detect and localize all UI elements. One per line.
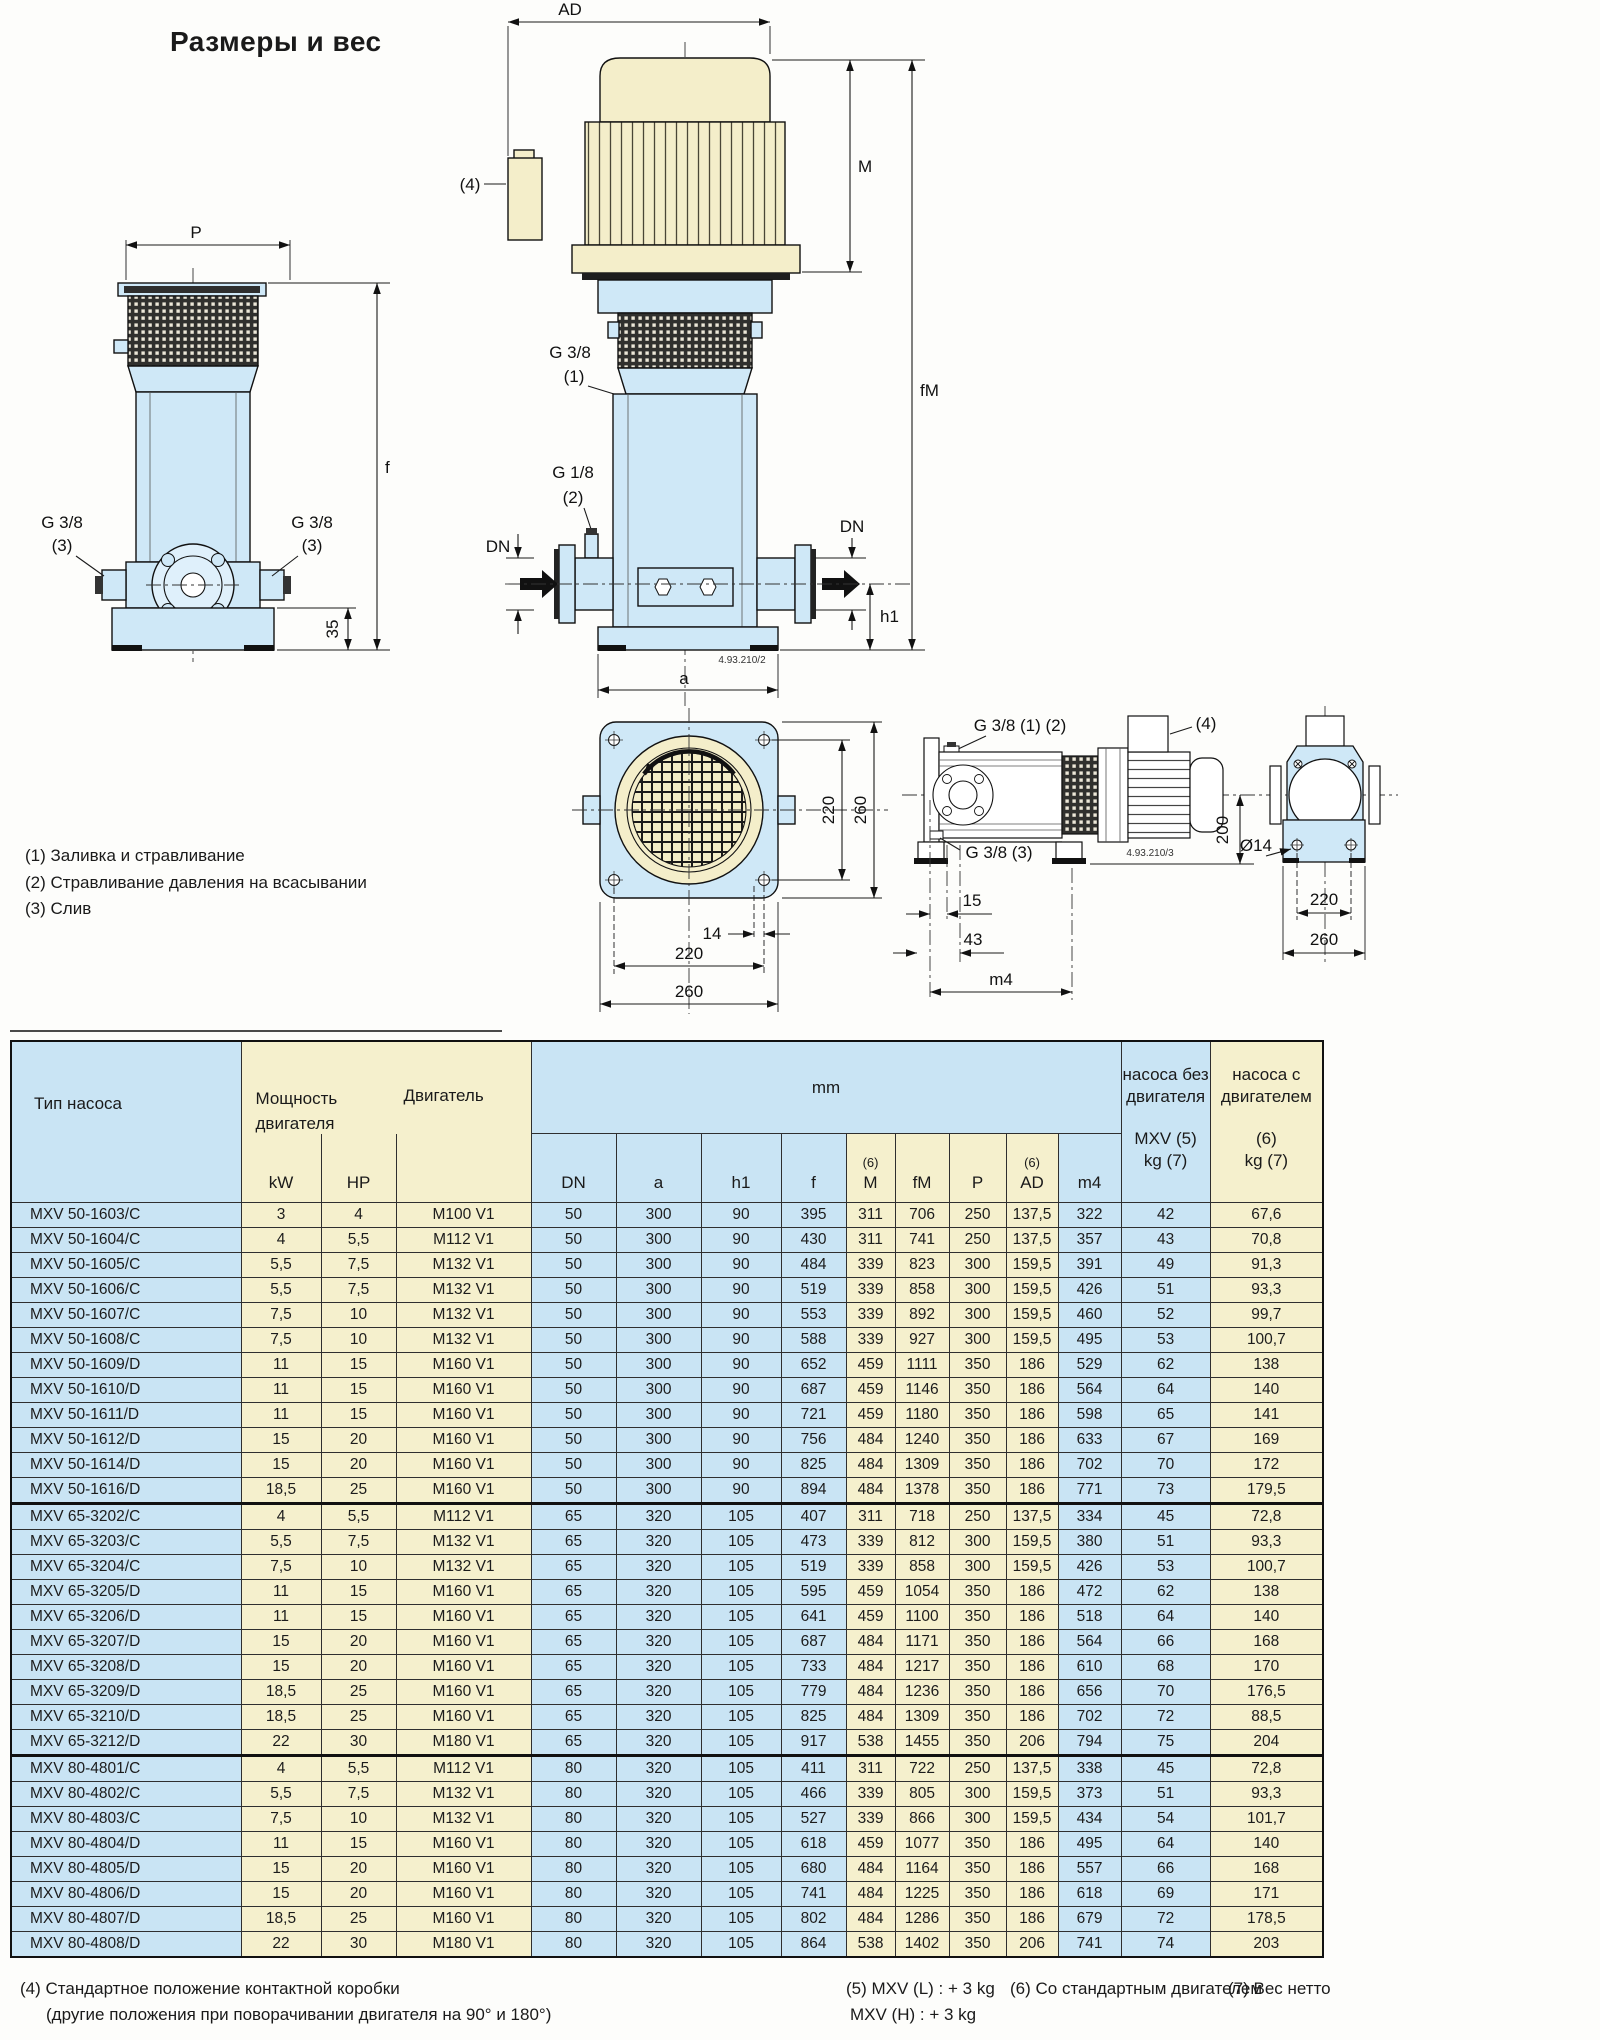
value-cell: 169 bbox=[1210, 1428, 1323, 1453]
port-label-g18: G 1/8 bbox=[552, 463, 594, 482]
terminal-box-label-4-side: (4) bbox=[1196, 714, 1217, 733]
value-cell: 5,5 bbox=[321, 1504, 396, 1530]
value-cell: 825 bbox=[781, 1453, 846, 1478]
value-cell: M132 V1 bbox=[396, 1303, 531, 1328]
value-cell: 300 bbox=[616, 1328, 701, 1353]
value-cell: 186 bbox=[1006, 1428, 1058, 1453]
value-cell: 320 bbox=[616, 1782, 701, 1807]
value-cell: 484 bbox=[846, 1882, 895, 1907]
value-cell: 140 bbox=[1210, 1832, 1323, 1857]
dim-label-43: 43 bbox=[964, 930, 983, 949]
value-cell: 357 bbox=[1058, 1228, 1121, 1253]
value-cell: 25 bbox=[321, 1478, 396, 1504]
pump-row: MXV 80-4806/D1520M160 V18032010574148412… bbox=[11, 1882, 1323, 1907]
value-cell: 518 bbox=[1058, 1605, 1121, 1630]
value-cell: 564 bbox=[1058, 1378, 1121, 1403]
value-cell: 484 bbox=[846, 1630, 895, 1655]
value-cell: 90 bbox=[701, 1228, 781, 1253]
pump-type-cell: MXV 50-1605/C bbox=[11, 1253, 241, 1278]
value-cell: 350 bbox=[949, 1932, 1006, 1958]
pump-type-cell: MXV 50-1606/C bbox=[11, 1278, 241, 1303]
value-cell: 892 bbox=[895, 1303, 949, 1328]
value-cell: 459 bbox=[846, 1353, 895, 1378]
value-cell: M160 V1 bbox=[396, 1605, 531, 1630]
value-cell: 69 bbox=[1121, 1882, 1210, 1907]
value-cell: 4 bbox=[241, 1756, 321, 1782]
value-cell: 50 bbox=[531, 1253, 616, 1278]
pump-type-cell: MXV 65-3208/D bbox=[11, 1655, 241, 1680]
pump-type-cell: MXV 50-1603/C bbox=[11, 1203, 241, 1228]
value-cell: M180 V1 bbox=[396, 1730, 531, 1756]
front-view-pump-with-motor: AD (4) G 3/8 (1) G 1/8 (2) bbox=[460, 0, 939, 706]
value-cell: 618 bbox=[781, 1832, 846, 1857]
pump-row: MXV 65-3208/D1520M160 V16532010573348412… bbox=[11, 1655, 1323, 1680]
value-cell: M160 V1 bbox=[396, 1478, 531, 1504]
port-label-g38-right: G 3/8 bbox=[291, 513, 333, 532]
value-cell: 3 bbox=[241, 1203, 321, 1228]
pump-type-cell: MXV 80-4805/D bbox=[11, 1857, 241, 1882]
value-cell: 812 bbox=[895, 1530, 949, 1555]
value-cell: 65 bbox=[531, 1680, 616, 1705]
value-cell: 159,5 bbox=[1006, 1253, 1058, 1278]
value-cell: 250 bbox=[949, 1504, 1006, 1530]
value-cell: 80 bbox=[531, 1756, 616, 1782]
value-cell: 64 bbox=[1121, 1605, 1210, 1630]
dim-label-260-vertical: 260 bbox=[851, 796, 870, 824]
value-cell: 105 bbox=[701, 1705, 781, 1730]
value-cell: 756 bbox=[781, 1428, 846, 1453]
value-cell: 334 bbox=[1058, 1504, 1121, 1530]
value-cell: 320 bbox=[616, 1705, 701, 1730]
value-cell: 679 bbox=[1058, 1907, 1121, 1932]
value-cell: 320 bbox=[616, 1832, 701, 1857]
pump-type-cell: MXV 80-4801/C bbox=[11, 1756, 241, 1782]
value-cell: 1111 bbox=[895, 1353, 949, 1378]
value-cell: 10 bbox=[321, 1303, 396, 1328]
value-cell: 18,5 bbox=[241, 1478, 321, 1504]
value-cell: 105 bbox=[701, 1932, 781, 1958]
pump-row: MXV 80-4805/D1520M160 V18032010568048411… bbox=[11, 1857, 1323, 1882]
value-cell: 137,5 bbox=[1006, 1203, 1058, 1228]
value-cell: 1171 bbox=[895, 1630, 949, 1655]
value-cell: 90 bbox=[701, 1278, 781, 1303]
value-cell: M112 V1 bbox=[396, 1228, 531, 1253]
value-cell: 350 bbox=[949, 1857, 1006, 1882]
footnote-6: (6) Со стандартным двигателем bbox=[1010, 1976, 1262, 2002]
value-cell: 65 bbox=[531, 1555, 616, 1580]
dim-label-220-vertical: 220 bbox=[819, 796, 838, 824]
value-cell: 320 bbox=[616, 1907, 701, 1932]
value-cell: 802 bbox=[781, 1907, 846, 1932]
footnote-7: (7) Вес нетто bbox=[1228, 1976, 1331, 2002]
value-cell: 62 bbox=[1121, 1353, 1210, 1378]
pump-type-cell: MXV 65-3205/D bbox=[11, 1580, 241, 1605]
value-cell: 484 bbox=[846, 1907, 895, 1932]
pump-type-cell: MXV 65-3207/D bbox=[11, 1630, 241, 1655]
value-cell: 186 bbox=[1006, 1705, 1058, 1730]
value-cell: 20 bbox=[321, 1882, 396, 1907]
value-cell: 300 bbox=[616, 1203, 701, 1228]
value-cell: 105 bbox=[701, 1857, 781, 1882]
value-cell: 65 bbox=[531, 1580, 616, 1605]
col-header-hp: HP bbox=[321, 1134, 396, 1203]
value-cell: 339 bbox=[846, 1253, 895, 1278]
value-cell: 20 bbox=[321, 1630, 396, 1655]
pump-row: MXV 65-3203/C5,57,5M132 V165320105473339… bbox=[11, 1530, 1323, 1555]
value-cell: 100,7 bbox=[1210, 1328, 1323, 1353]
value-cell: 322 bbox=[1058, 1203, 1121, 1228]
value-cell: 7,5 bbox=[321, 1782, 396, 1807]
value-cell: 350 bbox=[949, 1378, 1006, 1403]
value-cell: 65 bbox=[531, 1504, 616, 1530]
value-cell: M132 V1 bbox=[396, 1807, 531, 1832]
value-cell: 320 bbox=[616, 1730, 701, 1756]
value-cell: 80 bbox=[531, 1782, 616, 1807]
value-cell: 10 bbox=[321, 1555, 396, 1580]
pump-type-cell: MXV 50-1616/D bbox=[11, 1478, 241, 1504]
value-cell: 527 bbox=[781, 1807, 846, 1832]
value-cell: 54 bbox=[1121, 1807, 1210, 1832]
pump-type-cell: MXV 50-1609/D bbox=[11, 1353, 241, 1378]
value-cell: 300 bbox=[949, 1278, 1006, 1303]
value-cell: 93,3 bbox=[1210, 1278, 1323, 1303]
value-cell: 411 bbox=[781, 1756, 846, 1782]
value-cell: 466 bbox=[781, 1782, 846, 1807]
value-cell: 350 bbox=[949, 1832, 1006, 1857]
pump-type-cell: MXV 50-1610/D bbox=[11, 1378, 241, 1403]
value-cell: 50 bbox=[531, 1428, 616, 1453]
value-cell: 90 bbox=[701, 1378, 781, 1403]
value-cell: 141 bbox=[1210, 1403, 1323, 1428]
value-cell: 70 bbox=[1121, 1680, 1210, 1705]
value-cell: 15 bbox=[321, 1353, 396, 1378]
value-cell: 598 bbox=[1058, 1403, 1121, 1428]
value-cell: 1455 bbox=[895, 1730, 949, 1756]
pump-group-1: MXV 50-1603/C34M100 V1503009039531170625… bbox=[11, 1203, 1323, 1504]
value-cell: 519 bbox=[781, 1555, 846, 1580]
value-cell: 15 bbox=[241, 1857, 321, 1882]
value-cell: 15 bbox=[321, 1832, 396, 1857]
pump-type-cell: MXV 65-3210/D bbox=[11, 1705, 241, 1730]
value-cell: 350 bbox=[949, 1403, 1006, 1428]
value-cell: 20 bbox=[321, 1857, 396, 1882]
value-cell: 5,5 bbox=[241, 1253, 321, 1278]
pump-type-cell: MXV 50-1608/C bbox=[11, 1328, 241, 1353]
pump-row: MXV 80-4802/C5,57,5M132 V180320105466339… bbox=[11, 1782, 1323, 1807]
value-cell: M132 V1 bbox=[396, 1782, 531, 1807]
value-cell: 105 bbox=[701, 1655, 781, 1680]
value-cell: 350 bbox=[949, 1605, 1006, 1630]
value-cell: 311 bbox=[846, 1504, 895, 1530]
port-label-1: (1) bbox=[564, 367, 585, 386]
value-cell: 105 bbox=[701, 1756, 781, 1782]
value-cell: 168 bbox=[1210, 1857, 1323, 1882]
value-cell: 1240 bbox=[895, 1428, 949, 1453]
value-cell: 350 bbox=[949, 1453, 1006, 1478]
dim-label-p: P bbox=[190, 223, 201, 242]
value-cell: 380 bbox=[1058, 1530, 1121, 1555]
pump-row: MXV 65-3204/C7,510M132 V1653201055193398… bbox=[11, 1555, 1323, 1580]
value-cell: 50 bbox=[531, 1303, 616, 1328]
value-cell: 206 bbox=[1006, 1730, 1058, 1756]
value-cell: 15 bbox=[321, 1403, 396, 1428]
value-cell: 186 bbox=[1006, 1907, 1058, 1932]
value-cell: 80 bbox=[531, 1807, 616, 1832]
value-cell: 633 bbox=[1058, 1428, 1121, 1453]
value-cell: 538 bbox=[846, 1730, 895, 1756]
value-cell: 350 bbox=[949, 1907, 1006, 1932]
value-cell: 171 bbox=[1210, 1882, 1323, 1907]
value-cell: 484 bbox=[846, 1680, 895, 1705]
value-cell: 311 bbox=[846, 1203, 895, 1228]
value-cell: 7,5 bbox=[241, 1555, 321, 1580]
pump-type-cell: MXV 80-4804/D bbox=[11, 1832, 241, 1857]
dim-label-15: 15 bbox=[963, 891, 982, 910]
value-cell: 687 bbox=[781, 1630, 846, 1655]
value-cell: 300 bbox=[616, 1303, 701, 1328]
value-cell: 68 bbox=[1121, 1655, 1210, 1680]
value-cell: 459 bbox=[846, 1403, 895, 1428]
pump-row: MXV 65-3207/D1520M160 V16532010568748411… bbox=[11, 1630, 1323, 1655]
value-cell: 300 bbox=[949, 1328, 1006, 1353]
col-header-weight-without-motor: насоса бездвигателя MXV (5)kg (7) bbox=[1121, 1041, 1210, 1203]
value-cell: 50 bbox=[531, 1353, 616, 1378]
value-cell: M112 V1 bbox=[396, 1504, 531, 1530]
value-cell: 105 bbox=[701, 1504, 781, 1530]
value-cell: 90 bbox=[701, 1303, 781, 1328]
port-label-g38-3-side: G 3/8 (3) bbox=[965, 843, 1032, 862]
value-cell: 917 bbox=[781, 1730, 846, 1756]
col-header-weight-with-motor: насоса сдвигателем (6)kg (7) bbox=[1210, 1041, 1323, 1203]
value-cell: 65 bbox=[1121, 1403, 1210, 1428]
value-cell: 186 bbox=[1006, 1378, 1058, 1403]
value-cell: 62 bbox=[1121, 1580, 1210, 1605]
value-cell: 140 bbox=[1210, 1605, 1323, 1630]
value-cell: 350 bbox=[949, 1655, 1006, 1680]
value-cell: 204 bbox=[1210, 1730, 1323, 1756]
value-cell: 186 bbox=[1006, 1857, 1058, 1882]
pump-type-cell: MXV 65-3209/D bbox=[11, 1680, 241, 1705]
pump-type-cell: MXV 50-1614/D bbox=[11, 1453, 241, 1478]
value-cell: 186 bbox=[1006, 1478, 1058, 1504]
value-cell: 823 bbox=[895, 1253, 949, 1278]
value-cell: 159,5 bbox=[1006, 1278, 1058, 1303]
value-cell: 90 bbox=[701, 1428, 781, 1453]
value-cell: 45 bbox=[1121, 1504, 1210, 1530]
value-cell: 564 bbox=[1058, 1630, 1121, 1655]
value-cell: M160 V1 bbox=[396, 1630, 531, 1655]
value-cell: 7,5 bbox=[321, 1253, 396, 1278]
pump-row: MXV 65-3212/D2230M180 V16532010591753814… bbox=[11, 1730, 1323, 1756]
value-cell: 206 bbox=[1006, 1932, 1058, 1958]
drawing-note-3: (3) Слив bbox=[25, 896, 367, 923]
value-cell: 138 bbox=[1210, 1353, 1323, 1378]
dim-label-dn-right: DN bbox=[840, 517, 865, 536]
col-header-f: f bbox=[781, 1134, 846, 1203]
value-cell: 186 bbox=[1006, 1630, 1058, 1655]
port-label-3-right: (3) bbox=[302, 536, 323, 555]
value-cell: 170 bbox=[1210, 1655, 1323, 1680]
value-cell: 18,5 bbox=[241, 1907, 321, 1932]
value-cell: 70,8 bbox=[1210, 1228, 1323, 1253]
value-cell: 300 bbox=[616, 1478, 701, 1504]
col-header-motor-blank bbox=[396, 1134, 531, 1203]
drawing-code-side: 4.93.210/3 bbox=[1126, 848, 1174, 859]
pump-type-cell: MXV 80-4807/D bbox=[11, 1907, 241, 1932]
value-cell: 51 bbox=[1121, 1782, 1210, 1807]
dim-label-260-end: 260 bbox=[1310, 930, 1338, 949]
pump-row: MXV 50-1608/C7,510M132 V1503009058833992… bbox=[11, 1328, 1323, 1353]
value-cell: 430 bbox=[781, 1228, 846, 1253]
value-cell: M160 V1 bbox=[396, 1655, 531, 1680]
value-cell: 50 bbox=[531, 1328, 616, 1353]
value-cell: M160 V1 bbox=[396, 1428, 531, 1453]
pump-type-cell: MXV 80-4806/D bbox=[11, 1882, 241, 1907]
value-cell: M160 V1 bbox=[396, 1907, 531, 1932]
port-label-g38-1-2: G 3/8 (1) (2) bbox=[974, 716, 1067, 735]
value-cell: 1225 bbox=[895, 1882, 949, 1907]
value-cell: 320 bbox=[616, 1504, 701, 1530]
pump-type-cell: MXV 65-3206/D bbox=[11, 1605, 241, 1630]
value-cell: 186 bbox=[1006, 1655, 1058, 1680]
value-cell: 794 bbox=[1058, 1730, 1121, 1756]
value-cell: 20 bbox=[321, 1428, 396, 1453]
value-cell: 105 bbox=[701, 1730, 781, 1756]
value-cell: 434 bbox=[1058, 1807, 1121, 1832]
col-header-motor: Двигатель bbox=[404, 1086, 484, 1106]
value-cell: 300 bbox=[949, 1253, 1006, 1278]
value-cell: 300 bbox=[616, 1453, 701, 1478]
value-cell: M160 V1 bbox=[396, 1857, 531, 1882]
drawing-code-front: 4.93.210/2 bbox=[718, 655, 766, 666]
value-cell: 741 bbox=[895, 1228, 949, 1253]
value-cell: 652 bbox=[781, 1353, 846, 1378]
value-cell: M160 V1 bbox=[396, 1403, 531, 1428]
value-cell: 7,5 bbox=[321, 1278, 396, 1303]
value-cell: 80 bbox=[531, 1832, 616, 1857]
value-cell: 45 bbox=[1121, 1756, 1210, 1782]
value-cell: 93,3 bbox=[1210, 1530, 1323, 1555]
dim-label-h1: h1 bbox=[880, 607, 899, 626]
value-cell: 459 bbox=[846, 1378, 895, 1403]
value-cell: 49 bbox=[1121, 1253, 1210, 1278]
value-cell: 1309 bbox=[895, 1453, 949, 1478]
value-cell: 4 bbox=[241, 1504, 321, 1530]
col-header-mm: mm bbox=[531, 1041, 1121, 1134]
value-cell: 460 bbox=[1058, 1303, 1121, 1328]
value-cell: 80 bbox=[531, 1907, 616, 1932]
value-cell: 311 bbox=[846, 1228, 895, 1253]
pump-type-cell: MXV 65-3212/D bbox=[11, 1730, 241, 1756]
value-cell: 15 bbox=[321, 1580, 396, 1605]
value-cell: 25 bbox=[321, 1907, 396, 1932]
value-cell: 65 bbox=[531, 1530, 616, 1555]
pump-row: MXV 50-1606/C5,57,5M132 V150300905193398… bbox=[11, 1278, 1323, 1303]
value-cell: 186 bbox=[1006, 1832, 1058, 1857]
value-cell: 101,7 bbox=[1210, 1807, 1323, 1832]
pump-row: MXV 50-1607/C7,510M132 V1503009055333989… bbox=[11, 1303, 1323, 1328]
value-cell: 137,5 bbox=[1006, 1504, 1058, 1530]
value-cell: 67 bbox=[1121, 1428, 1210, 1453]
value-cell: 300 bbox=[616, 1378, 701, 1403]
value-cell: 702 bbox=[1058, 1705, 1121, 1730]
value-cell: 105 bbox=[701, 1832, 781, 1857]
col-header-a: a bbox=[616, 1134, 701, 1203]
value-cell: 320 bbox=[616, 1530, 701, 1555]
value-cell: 11 bbox=[241, 1403, 321, 1428]
drawing-notes: (1) Заливка и стравливание (2) Стравлива… bbox=[25, 843, 367, 923]
value-cell: 459 bbox=[846, 1832, 895, 1857]
port-label-g38-left: G 3/8 bbox=[41, 513, 83, 532]
drawing-note-1: (1) Заливка и стравливание bbox=[25, 843, 367, 870]
value-cell: 350 bbox=[949, 1478, 1006, 1504]
value-cell: 50 bbox=[531, 1453, 616, 1478]
value-cell: M132 V1 bbox=[396, 1328, 531, 1353]
value-cell: 80 bbox=[531, 1857, 616, 1882]
value-cell: 7,5 bbox=[241, 1807, 321, 1832]
value-cell: 858 bbox=[895, 1555, 949, 1580]
value-cell: 15 bbox=[241, 1453, 321, 1478]
value-cell: 779 bbox=[781, 1680, 846, 1705]
value-cell: 105 bbox=[701, 1807, 781, 1832]
dim-label-220-bottom: 220 bbox=[675, 944, 703, 963]
value-cell: 495 bbox=[1058, 1832, 1121, 1857]
value-cell: 65 bbox=[531, 1605, 616, 1630]
col-header-p: P bbox=[949, 1134, 1006, 1203]
value-cell: 595 bbox=[781, 1580, 846, 1605]
value-cell: 4 bbox=[321, 1203, 396, 1228]
value-cell: 72,8 bbox=[1210, 1756, 1323, 1782]
value-cell: 168 bbox=[1210, 1630, 1323, 1655]
dim-label-diam14: Ø14 bbox=[1240, 836, 1272, 855]
pump-type-cell: MXV 80-4808/D bbox=[11, 1932, 241, 1958]
value-cell: 65 bbox=[531, 1655, 616, 1680]
value-cell: 553 bbox=[781, 1303, 846, 1328]
dim-label-35: 35 bbox=[323, 620, 342, 639]
value-cell: M180 V1 bbox=[396, 1932, 531, 1958]
value-cell: 339 bbox=[846, 1807, 895, 1832]
value-cell: 320 bbox=[616, 1857, 701, 1882]
value-cell: 300 bbox=[616, 1278, 701, 1303]
value-cell: 741 bbox=[781, 1882, 846, 1907]
value-cell: 7,5 bbox=[241, 1328, 321, 1353]
pump-row: MXV 65-3202/C45,5M112 V16532010540731171… bbox=[11, 1504, 1323, 1530]
dim-label-200: 200 bbox=[1213, 816, 1232, 844]
value-cell: 1180 bbox=[895, 1403, 949, 1428]
pump-row: MXV 65-3205/D1115M160 V16532010559545910… bbox=[11, 1580, 1323, 1605]
value-cell: 350 bbox=[949, 1630, 1006, 1655]
value-cell: 11 bbox=[241, 1605, 321, 1630]
value-cell: 320 bbox=[616, 1932, 701, 1958]
value-cell: 1100 bbox=[895, 1605, 949, 1630]
value-cell: 53 bbox=[1121, 1555, 1210, 1580]
value-cell: 5,5 bbox=[321, 1228, 396, 1253]
value-cell: 519 bbox=[781, 1278, 846, 1303]
pump-type-cell: MXV 50-1604/C bbox=[11, 1228, 241, 1253]
value-cell: 5,5 bbox=[321, 1756, 396, 1782]
value-cell: 137,5 bbox=[1006, 1756, 1058, 1782]
terminal-box-label-4: (4) bbox=[460, 175, 481, 194]
col-header-ad: (6)AD bbox=[1006, 1134, 1058, 1203]
value-cell: 159,5 bbox=[1006, 1328, 1058, 1353]
pump-type-cell: MXV 65-3204/C bbox=[11, 1555, 241, 1580]
value-cell: 74 bbox=[1121, 1932, 1210, 1958]
value-cell: 66 bbox=[1121, 1857, 1210, 1882]
value-cell: M160 V1 bbox=[396, 1882, 531, 1907]
section-divider bbox=[10, 1030, 502, 1032]
value-cell: 426 bbox=[1058, 1278, 1121, 1303]
value-cell: 473 bbox=[781, 1530, 846, 1555]
